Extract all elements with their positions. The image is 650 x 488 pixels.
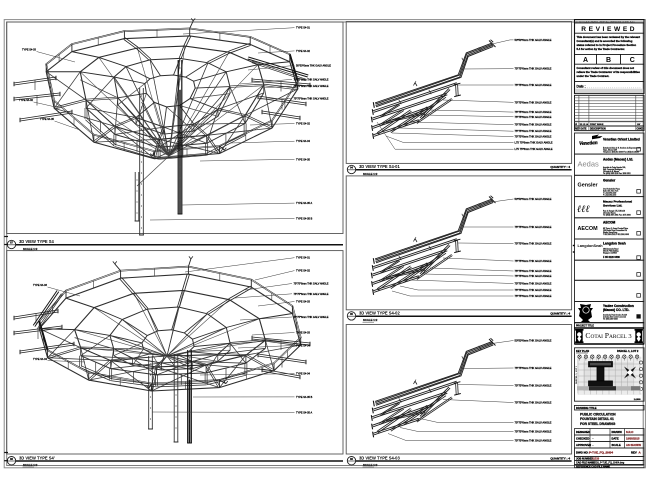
- svg-text:50*50*6mm THK GALV ANGLE: 50*50*6mm THK GALV ANGLE: [296, 64, 331, 67]
- svg-text:CHKD: CHKD: [637, 129, 644, 131]
- svg-text:TYPE S4-04: TYPE S4-04: [296, 140, 311, 143]
- svg-text:AECOM: AECOM: [603, 221, 616, 225]
- svg-text:Aedas (Macau) Ltd.: Aedas (Macau) Ltd.: [603, 158, 633, 162]
- svg-text:3D VIEW TYPE S4: 3D VIEW TYPE S4: [19, 239, 55, 244]
- svg-text:L75 75*6mm THK GALV ANGLE: L75 75*6mm THK GALV ANGLE: [515, 141, 553, 145]
- svg-text:75*75*6mm THK GALV ANGLE: 75*75*6mm THK GALV ANGLE: [515, 123, 552, 127]
- svg-text:DO NOT SCALE DRAWING. VERIFY: DO NOT SCALE DRAWING. VERIFY ALL DIMENSI…: [576, 20, 635, 23]
- svg-text:TYPE S4-03: TYPE S4-03: [296, 332, 311, 335]
- svg-text:REV: REV: [631, 451, 637, 455]
- svg-text:TYPE S4-05 B: TYPE S4-05 B: [296, 218, 313, 221]
- svg-text:Aedas: Aedas: [578, 160, 600, 169]
- svg-text:DESIGNED: DESIGNED: [576, 430, 590, 434]
- svg-text:75*75*6mm THK GALV ANGLE: 75*75*6mm THK GALV ANGLE: [294, 283, 329, 286]
- svg-text:L75 75*6mm THK GALV ANGLE: L75 75*6mm THK GALV ANGLE: [515, 147, 553, 151]
- svg-text:SCALE 1:2: SCALE 1:2: [23, 247, 38, 251]
- svg-text:75*75*6mm THK GALV ANGLE: 75*75*6mm THK GALV ANGLE: [294, 293, 329, 296]
- svg-text:T 852.2893.1551 F 852.2891: T 852.2893.1551 F 852.2891.0305: [603, 234, 629, 236]
- svg-text:SCALE 1:2: SCALE 1:2: [363, 463, 378, 467]
- svg-text:75*75*6mm THK GALV ANGLE: 75*75*6mm THK GALV ANGLE: [515, 83, 552, 87]
- svg-text:SCALE: SCALE: [612, 443, 621, 447]
- svg-text:KEY PLAN: KEY PLAN: [576, 349, 589, 353]
- svg-text:75*75*6mm THK GALV ANGLE: 75*75*6mm THK GALV ANGLE: [294, 98, 329, 101]
- svg-text:TYPE S4-05 B: TYPE S4-05 B: [296, 396, 313, 399]
- svg-text:AECOM: AECOM: [578, 226, 599, 232]
- svg-text:DRAWN: DRAWN: [612, 430, 622, 434]
- svg-text:REV: REV: [575, 129, 580, 131]
- svg-text:75*75*6mm THK GALV ANGLE: 75*75*6mm THK GALV ANGLE: [294, 316, 329, 319]
- svg-text:75*75*6mm THK GALV ANGLE: 75*75*6mm THK GALV ANGLE: [515, 294, 552, 298]
- svg-text:TYPE S4-04: TYPE S4-04: [296, 344, 311, 347]
- svg-text:3D VIEW TYPE S4-03: 3D VIEW TYPE S4-03: [359, 455, 400, 460]
- svg-text:SCALE 1:2: SCALE 1:2: [23, 463, 38, 467]
- svg-text:TYPE S4-02: TYPE S4-02: [19, 99, 34, 102]
- svg-text:This document has been reviewe: This document has been reviewed by the r…: [577, 35, 641, 39]
- svg-text:under the Trade Contract.: under the Trade Contract.: [577, 74, 610, 78]
- svg-text:CHECKED: CHECKED: [576, 436, 589, 440]
- svg-text:Consultant review of this docu: Consultant review of this document does …: [577, 66, 635, 70]
- svg-text:TYPE S4-05 A: TYPE S4-05 A: [296, 202, 312, 205]
- svg-text:75*75*6mm THK GALV ANGLE: 75*75*6mm THK GALV ANGLE: [515, 274, 552, 278]
- svg-text:50*50*6mm THK GALV ANGLE: 50*50*6mm THK GALV ANGLE: [515, 38, 552, 42]
- svg-text:APPROVED: APPROVED: [576, 443, 591, 447]
- svg-text:TYPE S4-05: TYPE S4-05: [40, 118, 55, 121]
- svg-text:REFERENCE CAD FILE NAME: REFERENCE CAD FILE NAME: [576, 465, 611, 468]
- svg-text:TYPE S4-01: TYPE S4-01: [296, 257, 311, 260]
- svg-text:B: B: [606, 57, 611, 64]
- svg-text:P-TUE_FQ_SH04: P-TUE_FQ_SH04: [589, 451, 613, 455]
- svg-text:DATE: DATE: [581, 128, 588, 131]
- svg-text:A: A: [575, 123, 577, 126]
- svg-text:AS SHOWN: AS SHOWN: [626, 443, 641, 447]
- svg-text:TYPE S4-02: TYPE S4-02: [296, 270, 311, 273]
- svg-text:QUANTITY : 4: QUANTITY : 4: [550, 456, 570, 460]
- svg-text:TYPE S4-05 A: TYPE S4-05 A: [296, 411, 312, 414]
- svg-text:75*75*6mm THK GALV ANGLE: 75*75*6mm THK GALV ANGLE: [515, 421, 552, 425]
- svg-text:(Macau) CO. LTD.: (Macau) CO. LTD.: [603, 308, 629, 312]
- svg-text:FOUNTAIN DETAIL 01: FOUNTAIN DETAIL 01: [580, 417, 614, 421]
- svg-text:F 65 6226 0366: F 65 6226 0366: [603, 256, 620, 259]
- svg-text:DWG NO :: DWG NO :: [576, 451, 590, 455]
- svg-text:TYPE S4-03: TYPE S4-03: [33, 284, 48, 287]
- svg-text:Venetian: Venetian: [579, 140, 598, 147]
- svg-text:3D VIEW TYPE S4-01: 3D VIEW TYPE S4-01: [359, 164, 400, 169]
- svg-text:75*75*6mm THK GALV ANGLE: 75*75*6mm THK GALV ANGLE: [515, 67, 552, 71]
- svg-text:TYPE S4-04: TYPE S4-04: [296, 373, 311, 376]
- svg-text:TYPE S4-02: TYPE S4-02: [296, 50, 311, 53]
- svg-text:PARCEL 1, LOT 2: PARCEL 1, LOT 2: [617, 349, 639, 353]
- svg-text:Tel: (853) 2833 1133 Fax: 283: Tel: (853) 2833 1133 Fax: 2833 1552: [603, 173, 631, 175]
- svg-text:-: -: [593, 437, 594, 440]
- svg-text:Tel: (853) 2837 3333: Tel: (853) 2837 3333: [603, 318, 618, 320]
- svg-text:PUBLIC CIRCULATION: PUBLIC CIRCULATION: [580, 413, 616, 417]
- svg-text:19/05/2015: 19/05/2015: [626, 436, 640, 440]
- svg-text:75*75*6mm THK GALV ANGLE: 75*75*6mm THK GALV ANGLE: [515, 259, 552, 263]
- svg-text:A: A: [583, 57, 588, 64]
- svg-text:Singapore 119958: Singapore 119958: [603, 251, 617, 254]
- svg-text:QUANTITY : 4: QUANTITY : 4: [550, 165, 570, 169]
- svg-text:FIRST ISSUE: FIRST ISSUE: [590, 124, 604, 126]
- svg-text:50*50*6mm THK GALV ANGLE: 50*50*6mm THK GALV ANGLE: [515, 197, 552, 201]
- svg-text:TYPE S4-03: TYPE S4-03: [22, 48, 37, 51]
- svg-text:22.12.14: 22.12.14: [580, 124, 589, 126]
- svg-text:Gensler: Gensler: [603, 179, 616, 183]
- svg-text:Date :: Date :: [577, 85, 586, 89]
- svg-text:75*75*6mm THK GALV ANGLE: 75*75*6mm THK GALV ANGLE: [515, 225, 552, 229]
- svg-text:DESCRIPTION: DESCRIPTION: [590, 129, 606, 131]
- svg-text:Telephone: (853) 81 18000 Fax: Telephone: (853) 81 18000 Fax: (853) 81 …: [603, 152, 639, 154]
- svg-text:75*75*6mm THK GALV ANGLE: 75*75*6mm THK GALV ANGLE: [515, 384, 552, 388]
- svg-text:relieve the Trade Contractor o: relieve the Trade Contractor of its resp…: [577, 70, 641, 74]
- svg-text:S.R.O: S.R.O: [626, 430, 633, 434]
- svg-text:Langdon Seah: Langdon Seah: [603, 242, 626, 246]
- svg-text:QUANTITY : 4: QUANTITY : 4: [550, 312, 570, 316]
- svg-text:DRAWING TITLE: DRAWING TITLE: [576, 406, 597, 410]
- svg-text:ℓℓℓ: ℓℓℓ: [577, 204, 590, 215]
- svg-text:75*75*6mm THK GALV ANGLE: 75*75*6mm THK GALV ANGLE: [515, 439, 552, 443]
- svg-text:TYPE S4-01: TYPE S4-01: [296, 27, 311, 30]
- svg-text:75*75*6mm THK GALV ANGLE: 75*75*6mm THK GALV ANGLE: [515, 401, 552, 405]
- svg-text:status referred to in Projec: status referred to in Project Procedure …: [577, 43, 637, 47]
- svg-text:75*75*6mm THK GALV ANGLE: 75*75*6mm THK GALV ANGLE: [515, 242, 552, 246]
- svg-text:PARCEL 1, LOT 1: PARCEL 1, LOT 1: [575, 365, 578, 384]
- svg-text:3D VIEW TYPE S4-02: 3D VIEW TYPE S4-02: [359, 311, 400, 316]
- svg-text:75*75*6mm THK GALV ANGLE: 75*75*6mm THK GALV ANGLE: [515, 269, 552, 273]
- svg-text:75*75*6mm THK GALV ANGLE: 75*75*6mm THK GALV ANGLE: [515, 100, 552, 104]
- svg-text:C: C: [630, 57, 635, 64]
- svg-text:Venetian Orient Limited: Venetian Orient Limited: [603, 138, 640, 142]
- svg-text:REVIEWED: REVIEWED: [581, 26, 637, 33]
- svg-text:1:1000: 1:1000: [634, 399, 642, 401]
- svg-text:SCALE 1:2: SCALE 1:2: [363, 318, 378, 322]
- svg-text:75*75*6mm THK GALV ANGLE: 75*75*6mm THK GALV ANGLE: [515, 282, 552, 286]
- svg-text:5.4 for action by the Trade Co: 5.4 for action by the Trade Contractor.: [577, 47, 626, 51]
- svg-text:FOR STEEL DRAWING: FOR STEEL DRAWING: [580, 422, 616, 426]
- svg-text:TYPE S4-02: TYPE S4-02: [296, 123, 311, 126]
- svg-text:TYPE S4-03: TYPE S4-03: [296, 301, 311, 304]
- svg-text:TYPE S4-04: TYPE S4-04: [33, 358, 48, 361]
- svg-text:3D VIEW TYPE S4': 3D VIEW TYPE S4': [19, 455, 55, 460]
- svg-text:75*75*6mm THK GALV ANGLE: 75*75*6mm THK GALV ANGLE: [515, 430, 552, 434]
- svg-text:Tel: (853) 2871 8461 Fax: 287: Tel: (853) 2871 8461 Fax: 2871 8460: [603, 215, 631, 217]
- svg-text:75*75*6mm THK GALV ANGLE: 75*75*6mm THK GALV ANGLE: [294, 78, 329, 81]
- svg-text:50*50*6mm THK GALV ANGLE: 50*50*6mm THK GALV ANGLE: [515, 339, 552, 343]
- svg-text:TYPE S4-05: TYPE S4-05: [296, 158, 311, 161]
- svg-text:-: -: [593, 444, 594, 447]
- svg-text:75*75*6mm THK GALV ANGLE: 75*75*6mm THK GALV ANGLE: [515, 288, 552, 292]
- svg-text:75*75*6mm THK GALV ANGLE: 75*75*6mm THK GALV ANGLE: [294, 85, 329, 88]
- svg-text:75*75*6mm THK GALV ANGLE: 75*75*6mm THK GALV ANGLE: [515, 110, 552, 114]
- svg-text:Consultant(s) and is accorded: Consultant(s) and is accorded the follow…: [577, 39, 633, 43]
- svg-text:75*75*6mm THK GALV ANGLE: 75*75*6mm THK GALV ANGLE: [515, 129, 552, 133]
- svg-text:75*75*6mm THK GALV ANGLE: 75*75*6mm THK GALV ANGLE: [515, 366, 552, 370]
- svg-text:Services Ltd.: Services Ltd.: [603, 203, 622, 207]
- svg-text:LangdonSeah: LangdonSeah: [578, 244, 604, 248]
- svg-text:SCALE 1:2: SCALE 1:2: [363, 172, 378, 176]
- svg-text:DATE: DATE: [612, 436, 619, 440]
- svg-text:75*75*6mm THK GALV ANGLE: 75*75*6mm THK GALV ANGLE: [515, 115, 552, 119]
- svg-text:75*75*6mm THK GALV ANGLE: 75*75*6mm THK GALV ANGLE: [515, 135, 552, 139]
- svg-text:Gensler: Gensler: [578, 183, 599, 189]
